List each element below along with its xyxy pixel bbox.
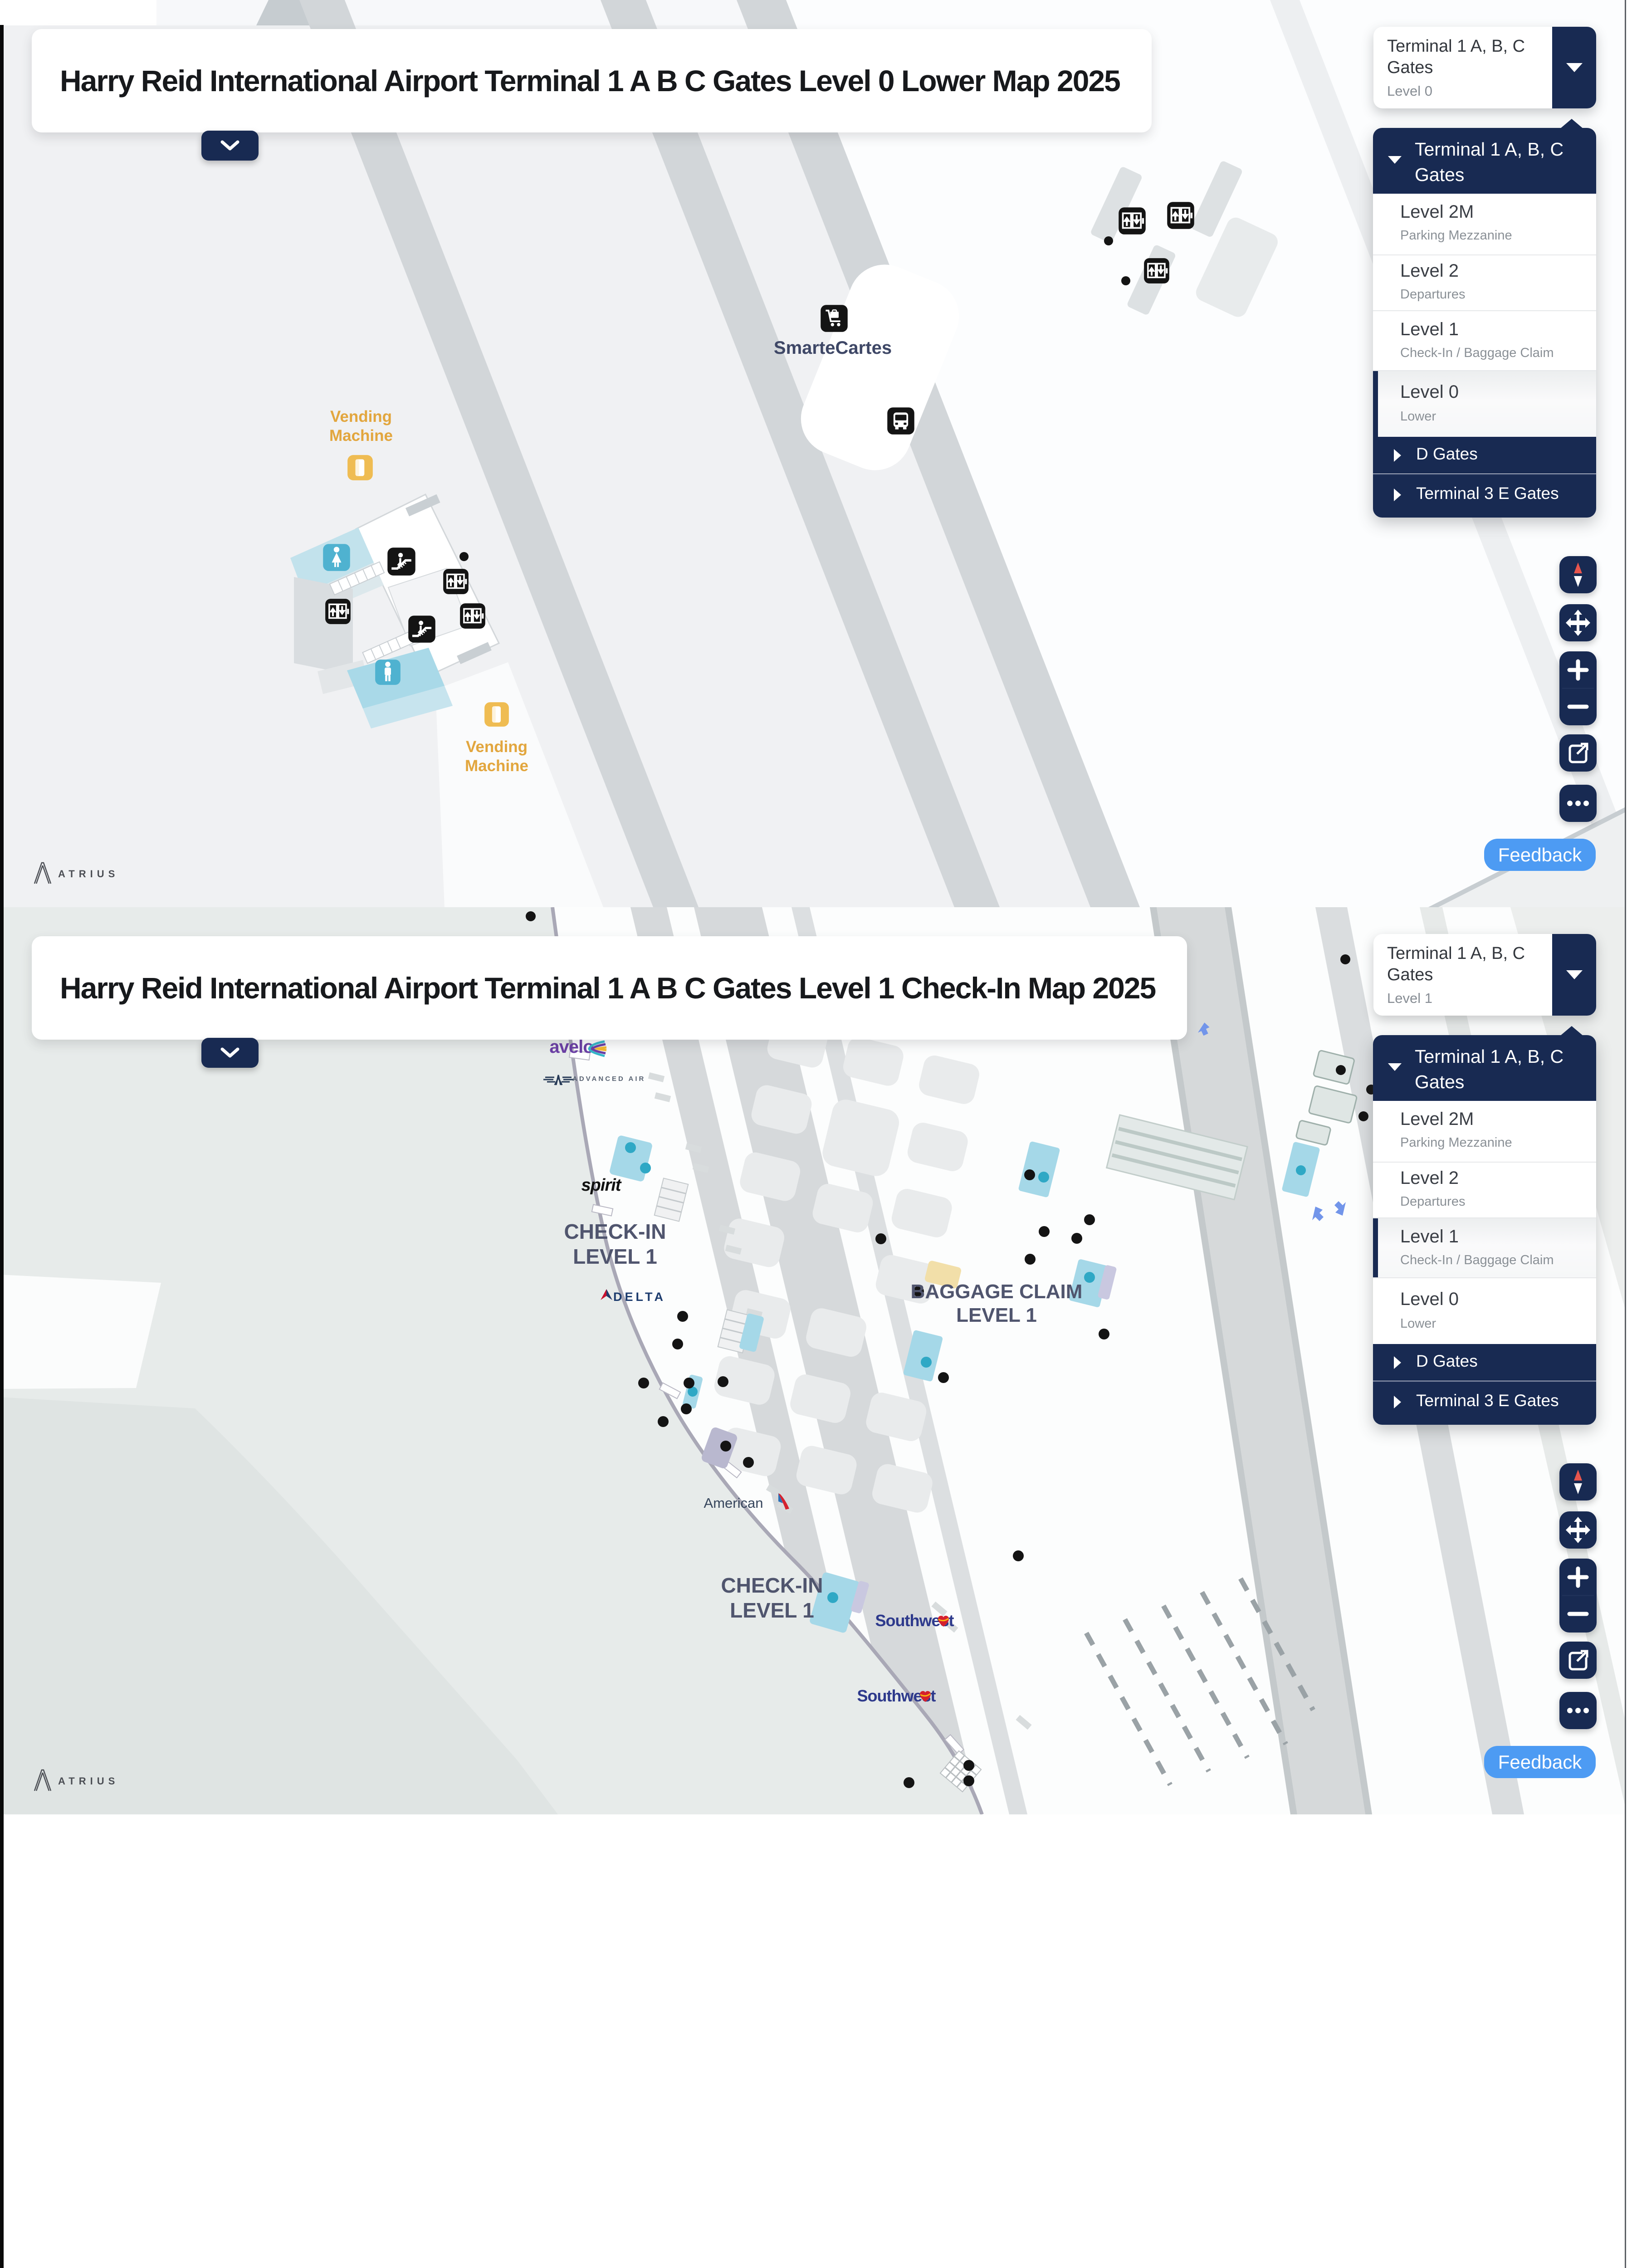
svg-text:ATRIUS: ATRIUS <box>58 868 119 880</box>
svg-text:ATRIUS: ATRIUS <box>58 1775 119 1787</box>
